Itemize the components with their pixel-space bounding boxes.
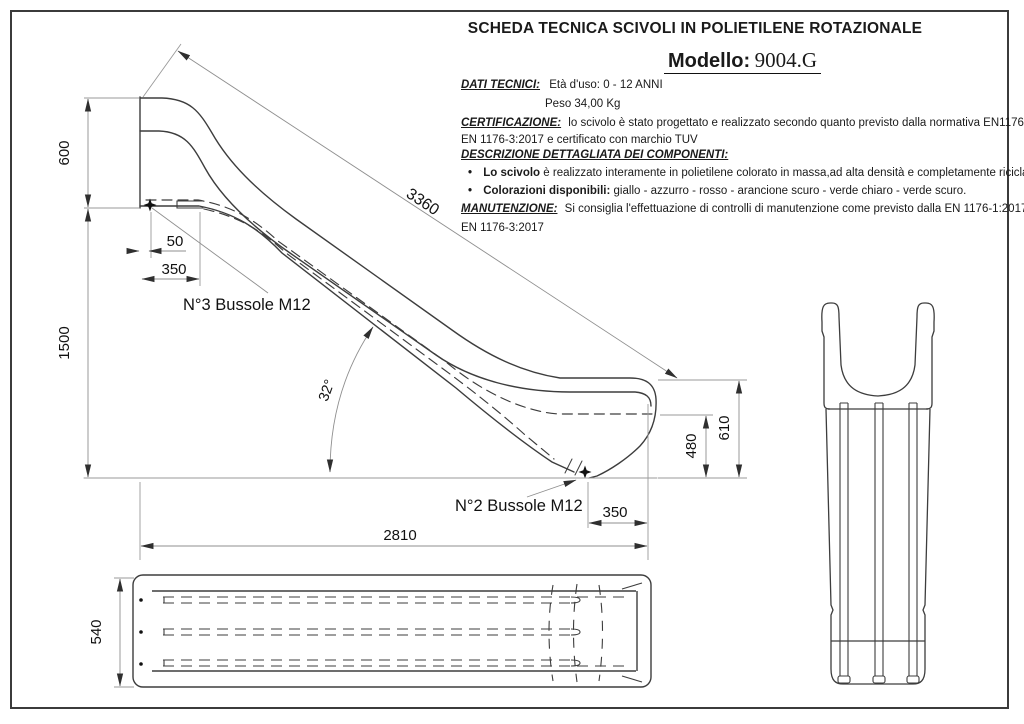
dim-1500-label: 1500 [56,326,73,359]
dim-angle-label: 32° [316,378,339,404]
dim-2810-label: 2810 [383,527,416,544]
dim-3360-label: 3360 [403,185,442,219]
top-view-rib-hooks [571,597,580,666]
platform-step [177,201,203,208]
top-view [133,575,651,687]
top-view-hole-3 [139,662,143,666]
foot-tip-ticks [565,459,582,475]
side-view [84,97,657,479]
top-view-hole-2 [139,630,143,634]
dim-350-bottom-label: 350 [602,504,627,521]
top-view-corner-ticks [622,583,642,682]
slide-outer-edge [140,98,656,478]
dim-540-label: 540 [88,619,105,644]
technical-sheet: 600 1500 50 350 3360 32° 480 610 350 281… [0,0,1024,724]
bussole-bottom-label: N°2 Bussole M12 [455,497,583,515]
top-view-hole-1 [139,598,143,602]
top-view-rib-dashes [163,597,627,666]
bussola-marker-bottom [579,466,592,479]
top-view-end-arcs [549,584,603,682]
technical-drawing-canvas: 600 1500 50 350 3360 32° 480 610 350 281… [0,0,1024,724]
dim-50-label: 50 [167,233,184,250]
dim-350-top-label: 350 [161,261,186,278]
top-view-rib-brackets [164,597,171,666]
front-view [822,303,934,684]
hidden-line-lower [204,209,554,459]
front-view-left-wall [822,322,830,409]
dim-angle-arc [330,327,373,472]
front-view-u-channel [822,303,934,396]
slide-surface-edge [140,131,651,406]
dim-600-label: 600 [56,140,73,165]
bussole-top-label: N°3 Bussole M12 [183,296,311,314]
leader-bussole-bottom [527,480,576,497]
leader-bussole-top [152,208,268,293]
dim-480-label: 480 [683,433,700,458]
front-view-right-wall [926,322,934,409]
slide-underside-edge [140,206,574,472]
dim-610-label: 610 [716,415,733,440]
front-view-body [826,409,930,684]
